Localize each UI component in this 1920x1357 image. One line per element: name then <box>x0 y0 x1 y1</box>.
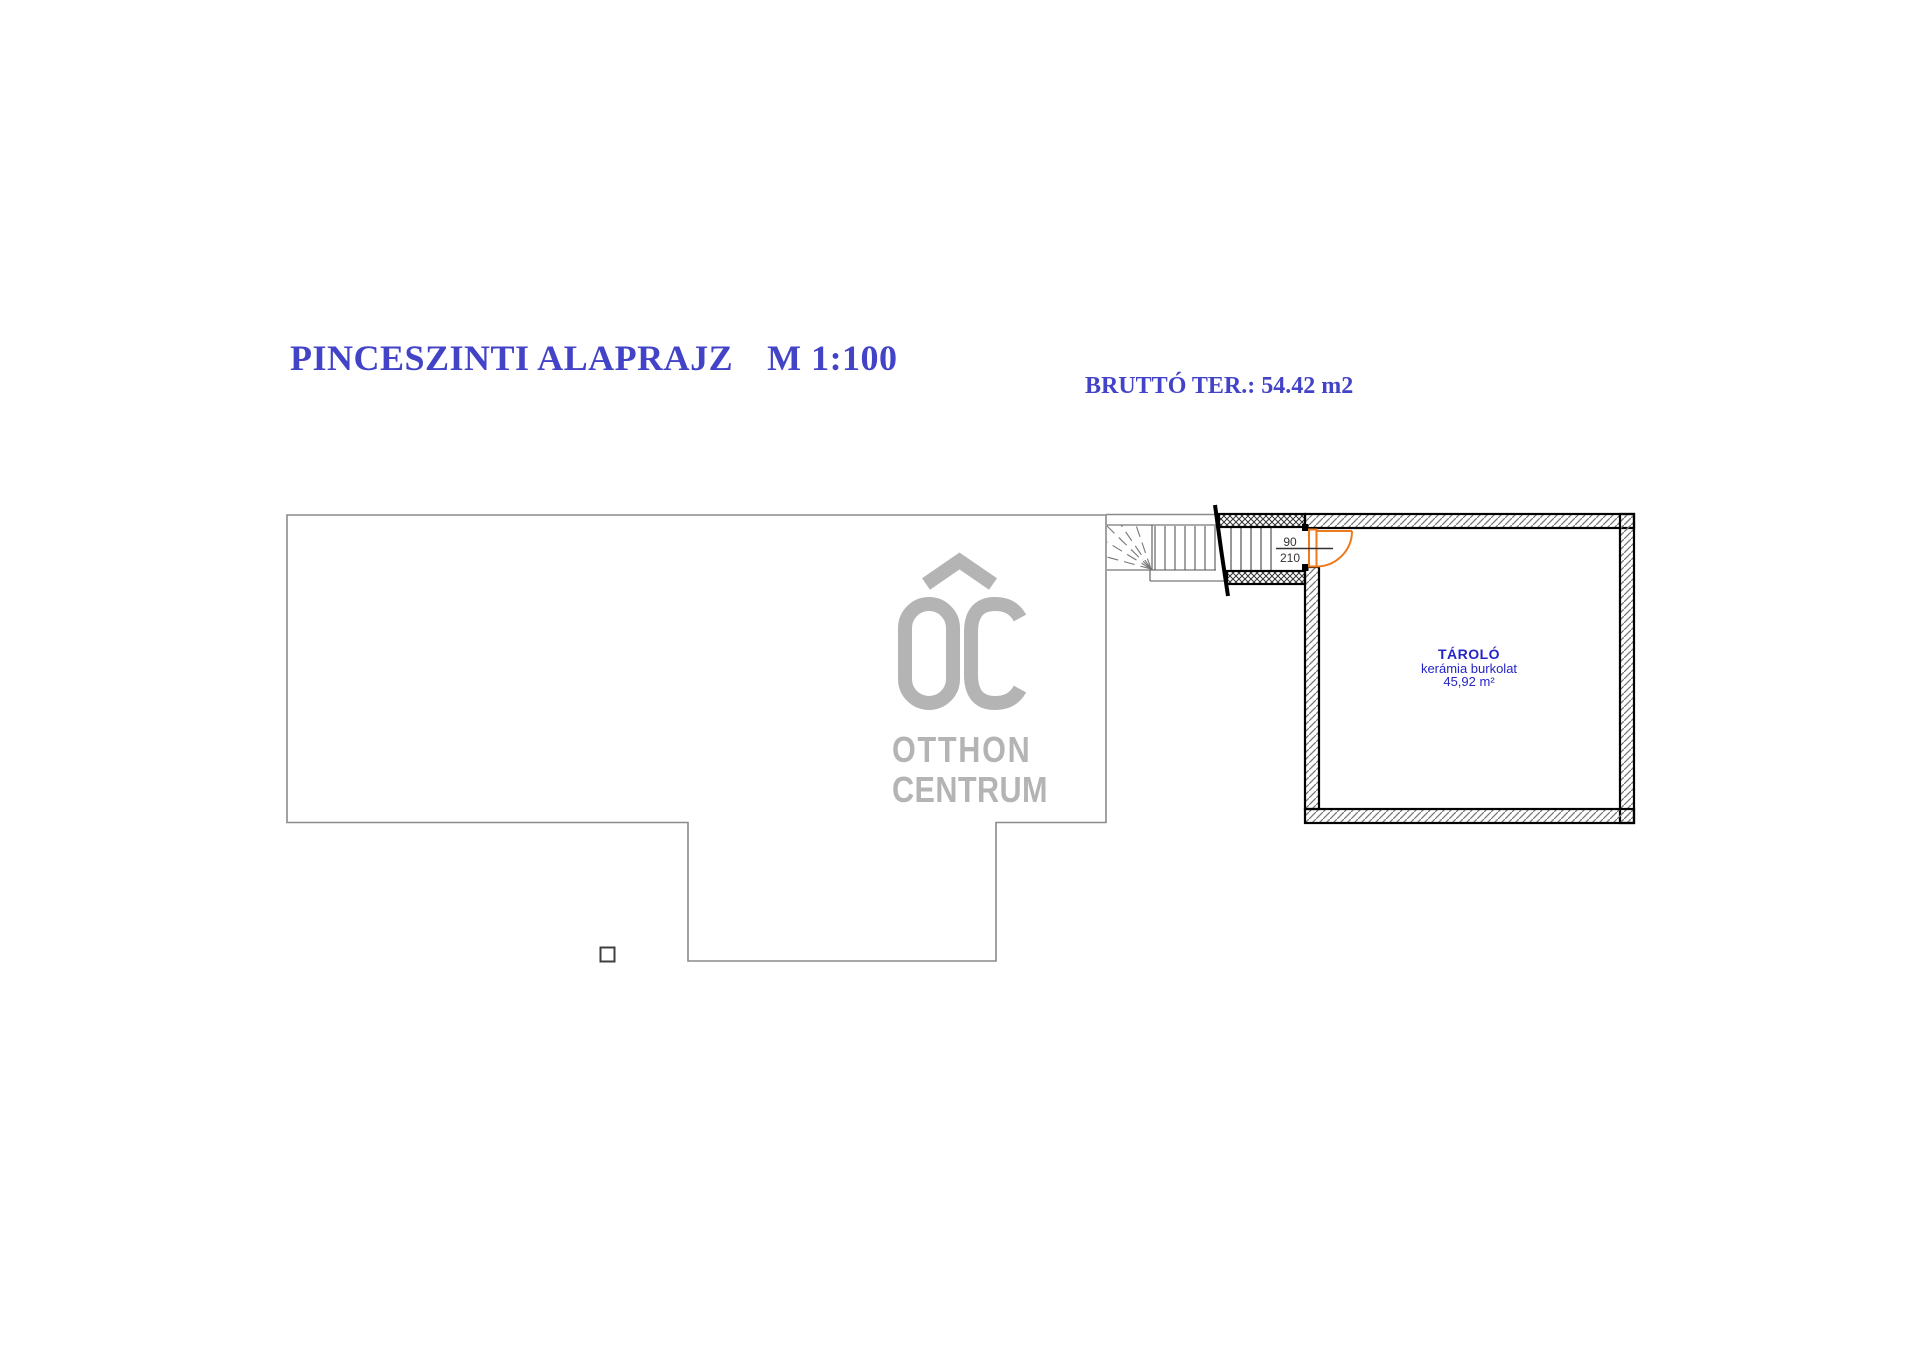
door-jamb-top <box>1302 524 1309 531</box>
logo-word-otthon: OTTHON <box>892 729 1028 771</box>
door-width-dimension: 90 <box>1277 535 1303 549</box>
room-wall-left <box>1305 567 1319 809</box>
room-wall-bottom <box>1305 809 1634 823</box>
door-height-dimension: 210 <box>1275 551 1305 565</box>
floorplan-drawing <box>0 0 1920 1357</box>
page-title: PINCESZINTI ALAPRAJZM 1:100 <box>290 337 898 379</box>
corridor-wall-bottom <box>1227 571 1305 584</box>
winder-treads <box>1107 525 1151 569</box>
room-label: TÁROLÓ kerámia burkolat 45,92 m² <box>1369 648 1569 689</box>
gross-area-note: BRUTTÓ TER.: 54.42 m2 <box>1085 373 1353 400</box>
stair-treads <box>1155 526 1215 570</box>
door-jamb-bottom <box>1302 564 1309 571</box>
room-finish: kerámia burkolat <box>1369 662 1569 676</box>
page-title-scale: M 1:100 <box>767 338 897 378</box>
page-title-text: PINCESZINTI ALAPRAJZ <box>290 338 733 378</box>
floorplan-page: PINCESZINTI ALAPRAJZM 1:100 BRUTTÓ TER.:… <box>0 0 1920 1357</box>
room-wall-right <box>1620 514 1634 823</box>
room-area: 45,92 m² <box>1369 675 1569 689</box>
room-name: TÁROLÓ <box>1369 648 1569 662</box>
logo-word-centrum: CENTRUM <box>892 769 1028 811</box>
column-marker <box>601 948 615 962</box>
building-outline <box>287 515 1216 962</box>
corridor-wall-top <box>1219 514 1305 527</box>
room-wall-top <box>1305 514 1634 528</box>
stair-treads-beyond-break <box>1231 527 1271 571</box>
